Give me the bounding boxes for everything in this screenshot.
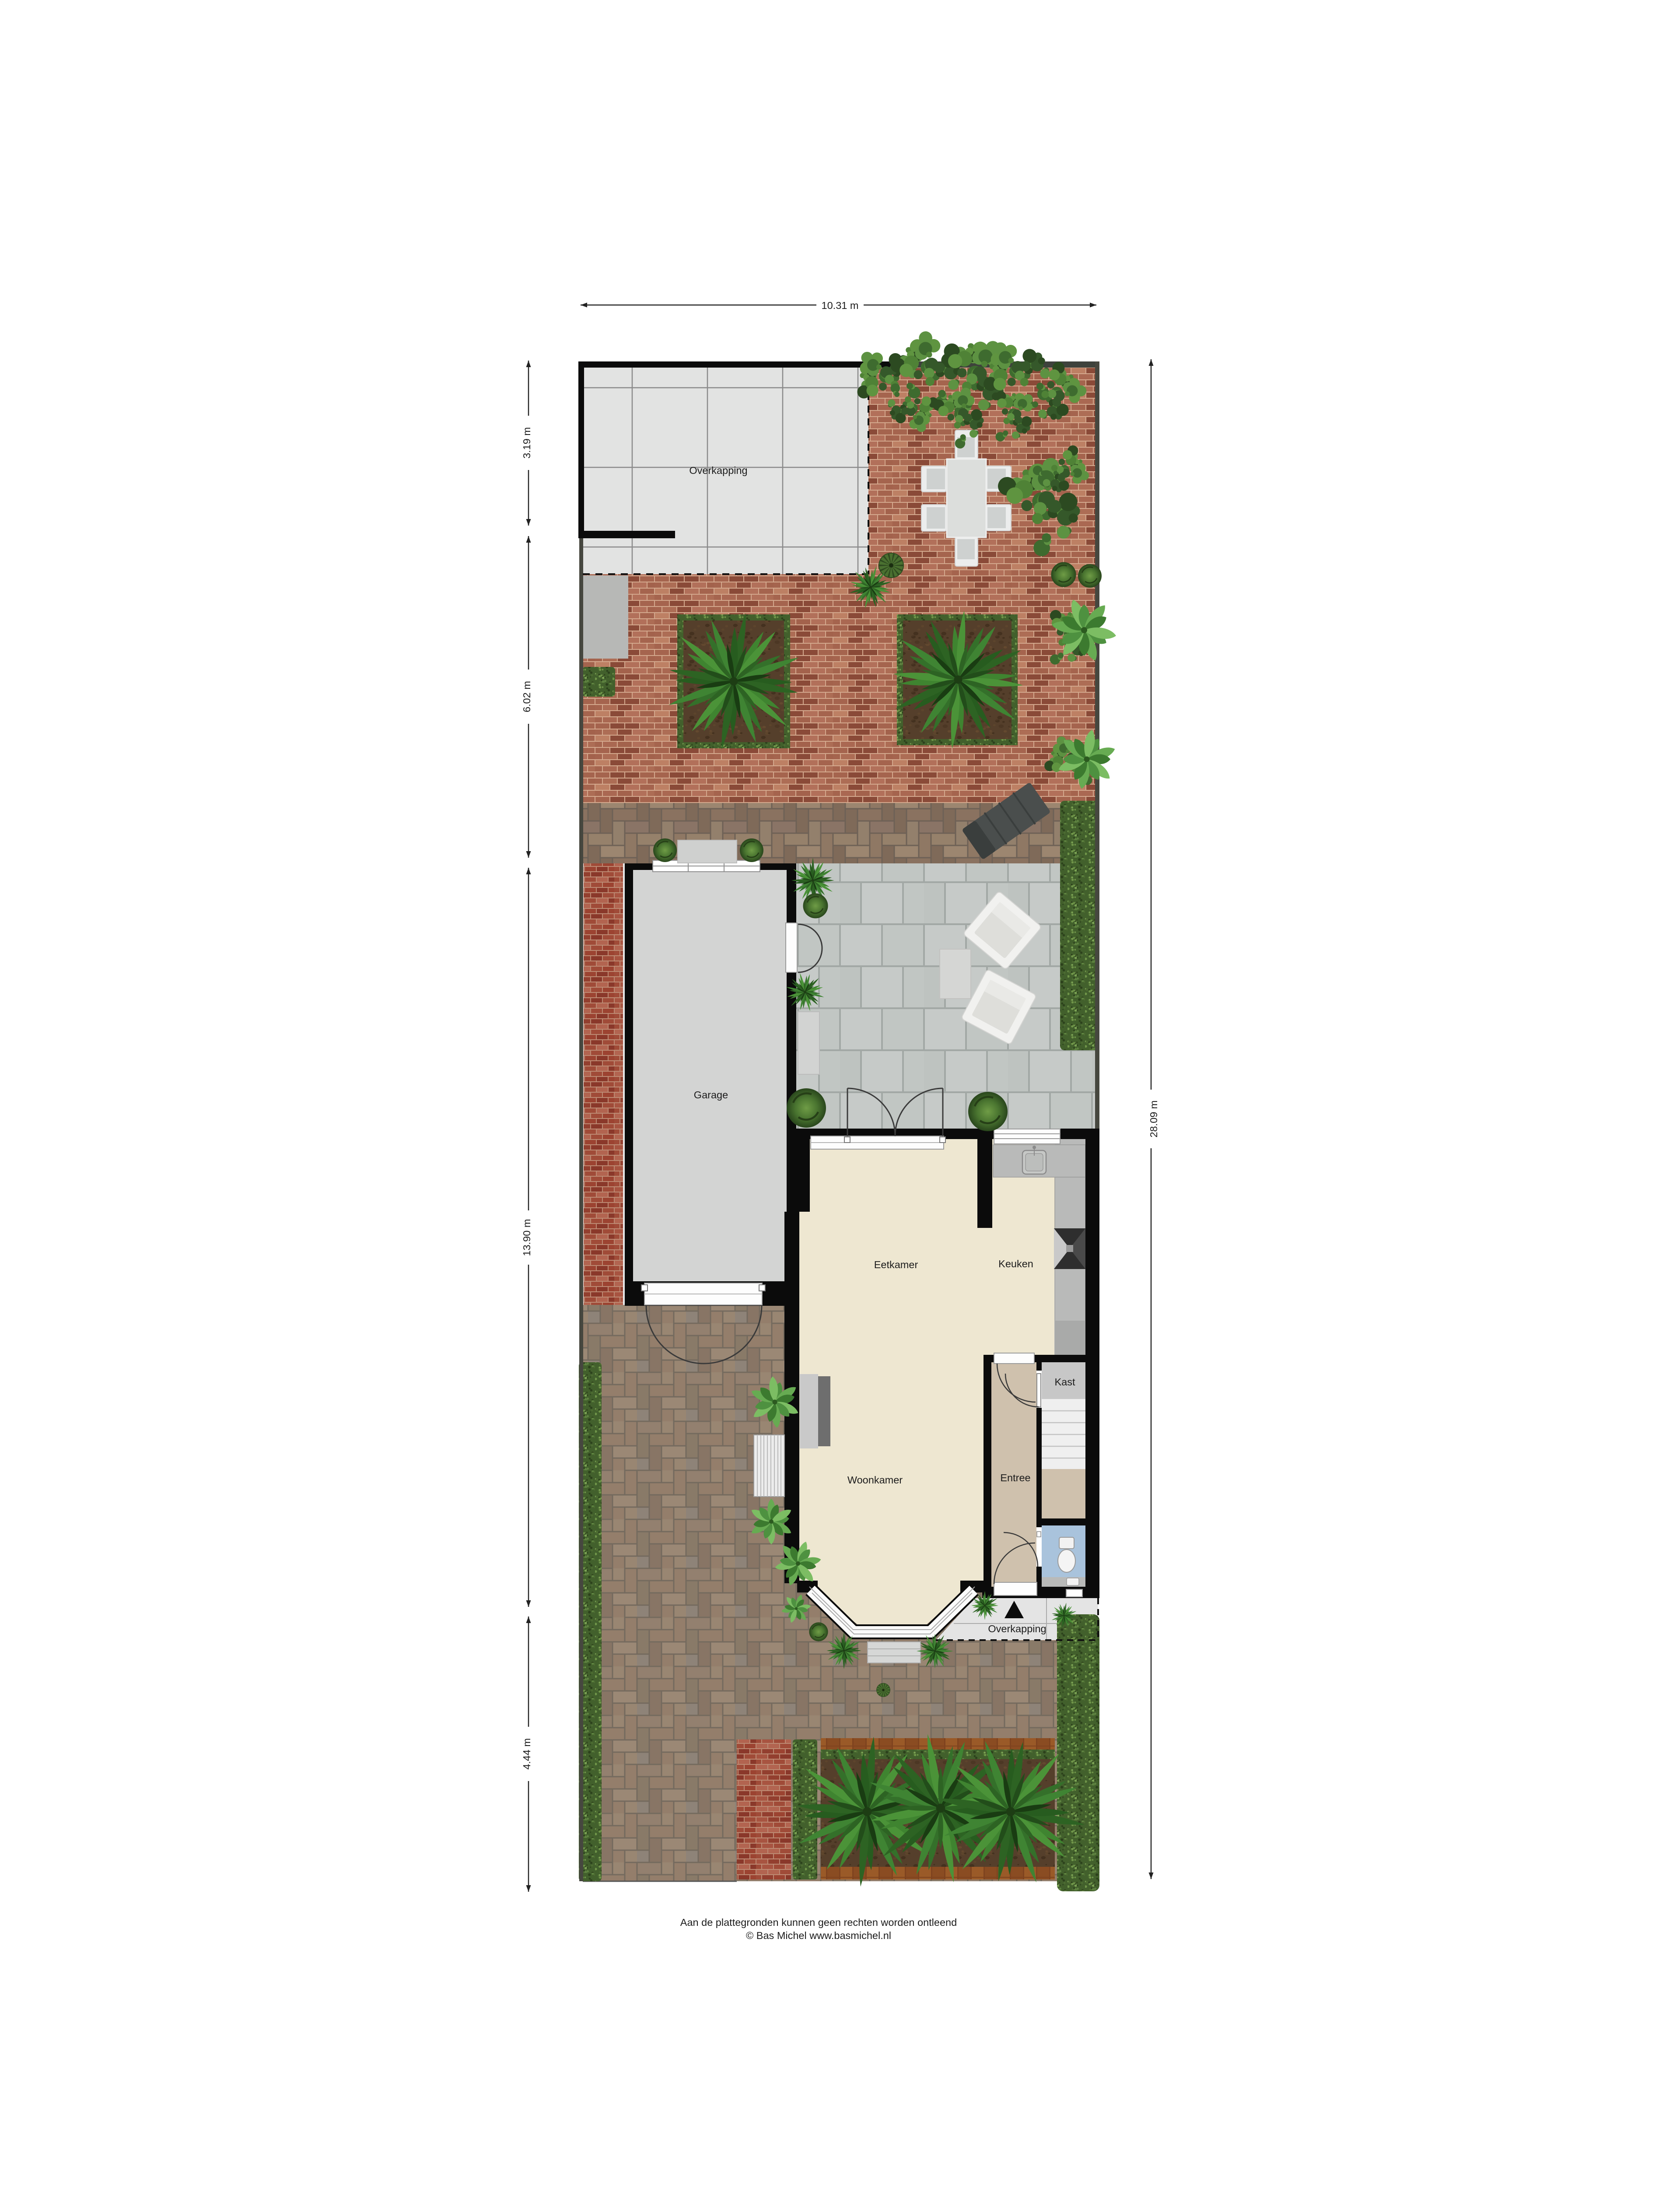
svg-text:Woonkamer: Woonkamer (847, 1474, 903, 1486)
svg-text:13.90 m: 13.90 m (521, 1219, 532, 1256)
svg-text:Garage: Garage (694, 1089, 728, 1101)
svg-text:28.09 m: 28.09 m (1148, 1101, 1159, 1138)
svg-text:© Bas Michel www.basmichel.nl: © Bas Michel www.basmichel.nl (746, 1930, 891, 1941)
svg-text:4.44 m: 4.44 m (521, 1738, 532, 1770)
svg-text:Overkapping: Overkapping (689, 465, 747, 476)
svg-text:Keuken: Keuken (998, 1258, 1033, 1269)
svg-text:Aan de plattegronden kunnen ge: Aan de plattegronden kunnen geen rechten… (680, 1917, 957, 1928)
svg-text:6.02 m: 6.02 m (521, 681, 532, 712)
svg-text:Entree: Entree (1000, 1472, 1030, 1483)
svg-text:Eetkamer: Eetkamer (874, 1259, 918, 1270)
svg-text:3.19 m: 3.19 m (521, 427, 532, 459)
svg-text:10.31 m: 10.31 m (822, 300, 859, 311)
svg-text:Kast: Kast (1054, 1376, 1075, 1388)
svg-text:Overkapping: Overkapping (988, 1623, 1046, 1634)
